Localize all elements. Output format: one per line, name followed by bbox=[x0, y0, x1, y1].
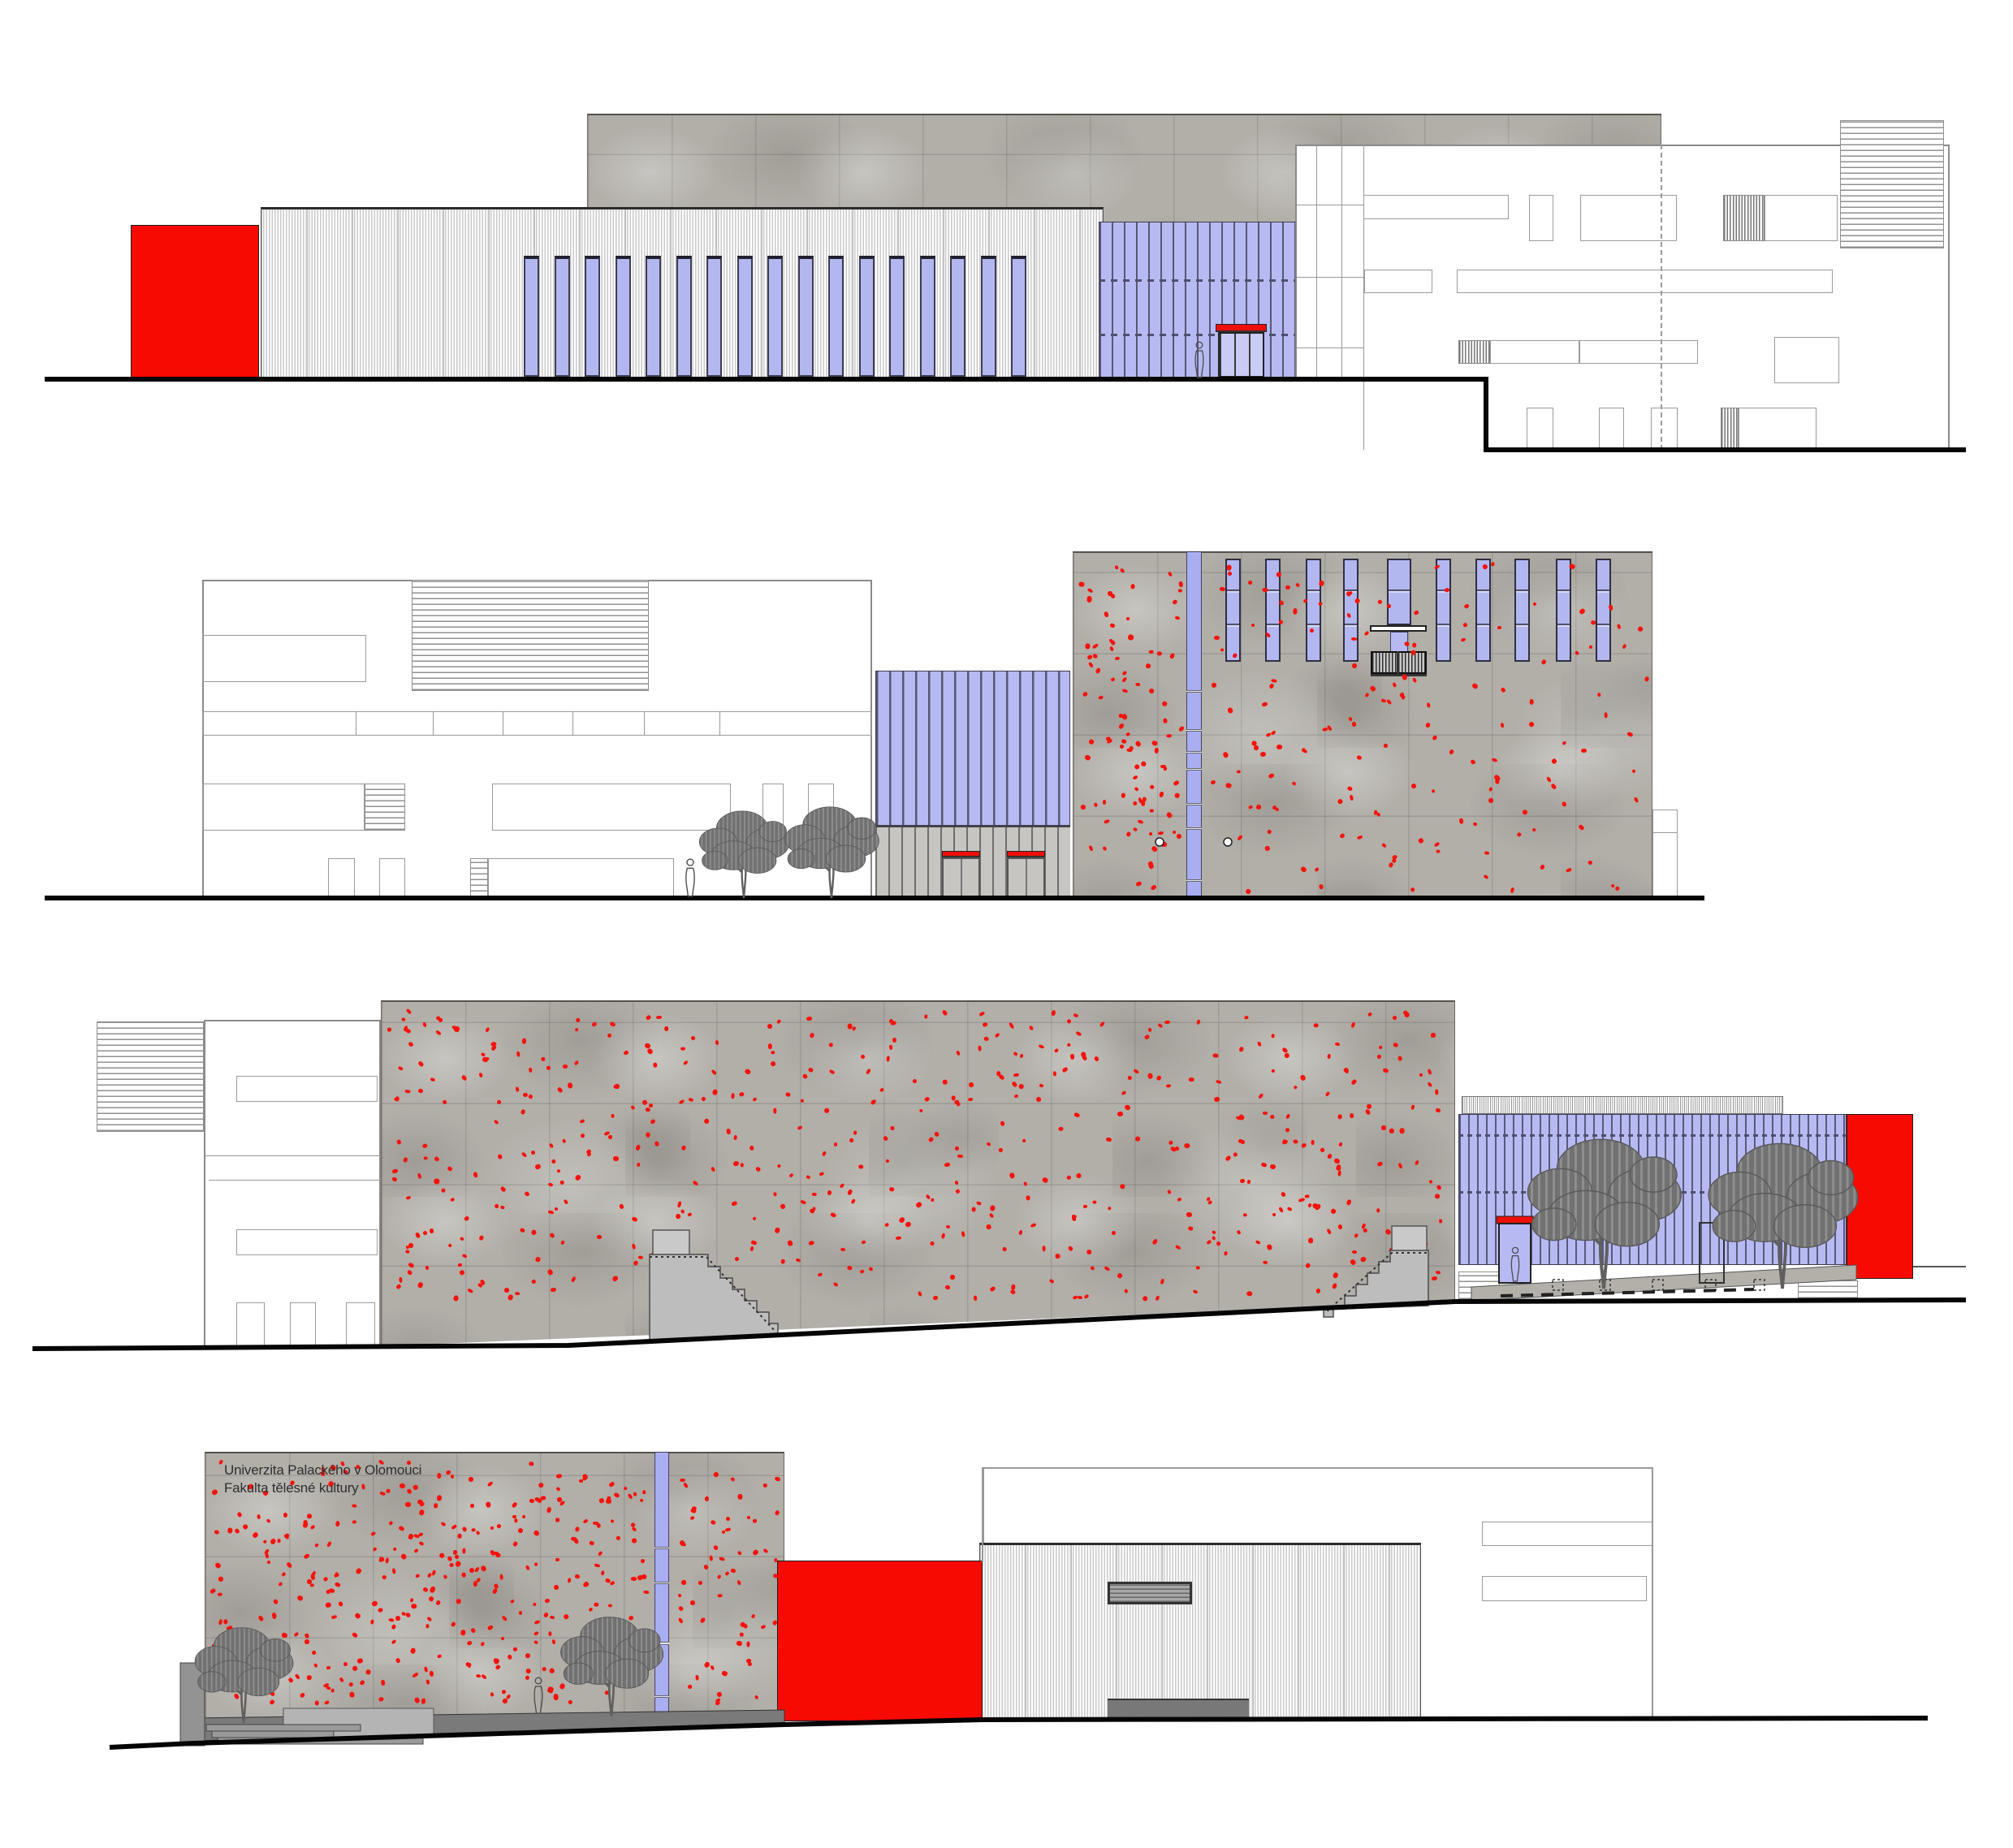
e2-slit-joint bbox=[1186, 690, 1202, 693]
red-dot bbox=[737, 1494, 742, 1500]
e2-mullion bbox=[356, 711, 356, 736]
red-dot bbox=[1156, 651, 1161, 656]
red-dot bbox=[1055, 1253, 1060, 1259]
e1-louver-panel bbox=[1721, 408, 1739, 450]
red-dot bbox=[352, 1520, 356, 1523]
red-dot bbox=[1292, 608, 1297, 615]
e2-door bbox=[379, 858, 405, 898]
red-dot bbox=[525, 1669, 531, 1673]
e4-window-band bbox=[1482, 1522, 1653, 1546]
e1-window bbox=[1490, 340, 1579, 364]
e1-slot-window bbox=[828, 256, 844, 377]
e1-red-block bbox=[131, 225, 259, 379]
red-dot bbox=[1352, 1250, 1357, 1253]
red-dot bbox=[834, 1142, 838, 1146]
red-dot bbox=[1093, 802, 1097, 807]
red-dot bbox=[1087, 596, 1092, 602]
e3-door bbox=[346, 1302, 375, 1346]
red-dot bbox=[405, 1250, 410, 1254]
e2-balcony-column bbox=[1387, 559, 1411, 625]
e2-slit-joint bbox=[1186, 729, 1202, 732]
red-dot bbox=[1178, 581, 1183, 587]
red-dot bbox=[1241, 1140, 1246, 1144]
red-dot bbox=[1195, 1266, 1199, 1269]
e4-slit-joint bbox=[654, 1642, 669, 1645]
red-dot bbox=[1225, 784, 1231, 788]
red-dot bbox=[1435, 1194, 1441, 1198]
red-dot bbox=[886, 1056, 890, 1062]
e2-window bbox=[202, 784, 365, 831]
red-dot bbox=[408, 1243, 413, 1248]
red-dot bbox=[608, 1134, 612, 1138]
e1-window bbox=[1765, 195, 1838, 241]
red-dot bbox=[434, 1503, 438, 1508]
e1-slot-window bbox=[889, 256, 905, 377]
red-dot bbox=[1166, 734, 1172, 738]
e3-window bbox=[236, 1229, 378, 1255]
e2-slot-window bbox=[1514, 559, 1530, 662]
e2-slot-window bbox=[1436, 559, 1451, 662]
red-dot bbox=[623, 1487, 626, 1490]
e1-window bbox=[1364, 270, 1432, 293]
e1-slot-window bbox=[616, 256, 631, 377]
e1-window bbox=[1739, 408, 1816, 450]
e3-floor-line bbox=[209, 1180, 381, 1181]
e1-window-band bbox=[1457, 270, 1833, 293]
e2-clerestory bbox=[202, 711, 872, 736]
e3-red-block bbox=[1847, 1114, 1913, 1279]
red-dot bbox=[1106, 1137, 1112, 1142]
red-dot bbox=[1160, 765, 1166, 768]
e2-window bbox=[492, 784, 731, 831]
e3-base-dashed bbox=[1501, 1289, 1754, 1296]
e3-steps-right bbox=[1798, 1280, 1858, 1299]
red-dot bbox=[631, 1577, 637, 1581]
red-dot bbox=[1219, 586, 1225, 591]
red-dot bbox=[1293, 1139, 1298, 1143]
e2-double-door bbox=[942, 857, 980, 898]
e3-cw-joint-1 bbox=[1458, 1134, 1847, 1137]
e3-window bbox=[236, 1076, 378, 1102]
e3-dotted-wall bbox=[381, 1000, 1455, 1348]
e1-lower-door bbox=[1599, 408, 1624, 450]
e1-slot-window bbox=[798, 256, 814, 377]
e4-slit-joint bbox=[654, 1695, 669, 1698]
e4-window-band bbox=[1482, 1576, 1647, 1601]
red-dot bbox=[472, 1528, 476, 1531]
red-dot bbox=[1400, 1128, 1405, 1133]
red-dot bbox=[1080, 805, 1086, 810]
e2-slit-joint bbox=[1186, 803, 1202, 805]
e1-floor-line bbox=[1296, 205, 1363, 205]
red-dot bbox=[896, 1236, 901, 1240]
e4-dark-plinth bbox=[1108, 1699, 1249, 1719]
e2-mullion bbox=[503, 711, 503, 736]
e1-col-line bbox=[1363, 145, 1364, 450]
e2-slit-joint bbox=[1186, 751, 1202, 753]
e1-window bbox=[1529, 195, 1553, 241]
red-dot bbox=[1309, 628, 1314, 633]
red-dot bbox=[773, 1191, 777, 1196]
red-dot bbox=[653, 1062, 658, 1067]
e2-slit-joint bbox=[1186, 879, 1202, 882]
e2-glass-hall bbox=[875, 671, 1070, 826]
e3-white-building bbox=[204, 1020, 381, 1348]
e1-slot-window bbox=[524, 256, 539, 377]
e1-louver-panel bbox=[1458, 340, 1490, 364]
red-dot bbox=[1308, 1237, 1313, 1243]
red-dot bbox=[421, 1699, 425, 1704]
red-dot bbox=[272, 1662, 277, 1667]
red-dot bbox=[681, 1579, 687, 1585]
e1-slot-window bbox=[950, 256, 965, 377]
red-dot bbox=[525, 1675, 529, 1680]
red-dot bbox=[1532, 828, 1536, 831]
red-dot bbox=[1581, 749, 1587, 753]
e2-slot-window bbox=[1475, 559, 1491, 662]
red-dot bbox=[1042, 1246, 1045, 1252]
red-dot bbox=[529, 1498, 535, 1503]
e1-slot-window bbox=[1011, 256, 1026, 377]
red-dot bbox=[1121, 792, 1125, 797]
e1-slot-window bbox=[859, 256, 875, 377]
e2-slit-joint bbox=[1186, 827, 1202, 830]
red-dot bbox=[553, 1694, 558, 1700]
e1-slot-window bbox=[706, 256, 722, 377]
red-dot bbox=[1141, 761, 1146, 766]
red-dot bbox=[1213, 1054, 1219, 1058]
red-dot bbox=[555, 1518, 559, 1522]
red-dot bbox=[1319, 884, 1323, 890]
red-dot bbox=[773, 1108, 776, 1114]
e2-window bbox=[808, 784, 834, 831]
e2-mullion bbox=[572, 711, 573, 736]
red-dot bbox=[768, 1043, 772, 1049]
e1-window bbox=[1579, 340, 1698, 364]
red-dot bbox=[1351, 637, 1358, 641]
e3-door bbox=[236, 1302, 265, 1346]
e1-louver-panel bbox=[1723, 195, 1765, 241]
red-dot bbox=[1386, 603, 1391, 608]
red-dot bbox=[1163, 719, 1168, 724]
e2-slot-window bbox=[1306, 559, 1321, 662]
e2-annex bbox=[1652, 810, 1678, 898]
e2-door bbox=[328, 858, 355, 898]
e1-slot-window bbox=[737, 256, 753, 377]
e1-slot-window bbox=[767, 256, 783, 377]
e2-grille-sill bbox=[1371, 674, 1427, 676]
red-dot bbox=[889, 1186, 894, 1191]
red-dot bbox=[1026, 1195, 1030, 1200]
red-dot bbox=[1214, 636, 1220, 640]
e1-window bbox=[1774, 337, 1839, 383]
annotation-line-2: Fakulta tělesné kultury bbox=[224, 1479, 421, 1497]
red-dot bbox=[504, 1287, 510, 1292]
red-dot bbox=[740, 1163, 743, 1167]
e2-window bbox=[202, 635, 366, 682]
red-dot bbox=[278, 1539, 281, 1543]
red-dot bbox=[646, 1133, 650, 1138]
e1-slot-window bbox=[585, 256, 600, 377]
red-dot bbox=[1052, 1071, 1056, 1076]
e1-col-line bbox=[1341, 145, 1342, 379]
ground-elevation-4 bbox=[110, 1718, 1928, 1747]
e2-mullion bbox=[719, 711, 720, 736]
e2-grille-post bbox=[1397, 651, 1399, 674]
e1-cw-joint-1 bbox=[1099, 279, 1296, 282]
e2-slit-joint bbox=[1186, 768, 1202, 771]
e1-col-line bbox=[1316, 145, 1317, 379]
red-dot bbox=[405, 1245, 409, 1249]
e3-roof-louver-band bbox=[1462, 1096, 1783, 1114]
e1-slot-window bbox=[646, 256, 661, 377]
e1-axis-line bbox=[1661, 145, 1662, 450]
e1-floor-line bbox=[1296, 348, 1363, 348]
red-dot bbox=[957, 1155, 963, 1158]
red-dot bbox=[476, 1673, 482, 1677]
red-dot bbox=[1244, 1015, 1248, 1019]
red-dot bbox=[1431, 1033, 1436, 1038]
red-dot bbox=[1276, 745, 1281, 749]
red-dot bbox=[493, 1551, 499, 1555]
red-dot bbox=[1313, 1023, 1318, 1027]
red-dot bbox=[453, 1550, 457, 1555]
red-dot bbox=[632, 1539, 637, 1544]
red-dot bbox=[642, 1490, 646, 1494]
e2-slot-window bbox=[1556, 559, 1571, 662]
e4-retaining-post bbox=[180, 1663, 205, 1746]
title-annotation: Univerzita Palackého v Olomouci Fakulta … bbox=[224, 1462, 421, 1497]
red-dot bbox=[1164, 1021, 1170, 1024]
red-dot bbox=[405, 1502, 411, 1507]
red-dot bbox=[1184, 1142, 1190, 1147]
red-dot bbox=[523, 1093, 528, 1098]
red-dot bbox=[1117, 1111, 1123, 1116]
e1-slot-window bbox=[676, 256, 692, 377]
red-dot bbox=[890, 1125, 895, 1130]
red-dot bbox=[1251, 740, 1256, 745]
red-dot bbox=[663, 1026, 668, 1031]
red-dot bbox=[1148, 832, 1152, 836]
red-dot bbox=[1174, 615, 1180, 620]
e2-slot-window bbox=[1596, 559, 1611, 662]
e2-louver-panel bbox=[470, 858, 488, 898]
red-dot bbox=[305, 1639, 309, 1644]
red-dot bbox=[380, 1680, 385, 1686]
e1-slot-window bbox=[981, 256, 996, 377]
e1-entrance-header bbox=[1216, 324, 1267, 332]
red-dot bbox=[1381, 1125, 1386, 1130]
e3-pit bbox=[1754, 1280, 1765, 1290]
annotation-line-1: Univerzita Palackého v Olomouci bbox=[224, 1462, 421, 1479]
red-dot bbox=[737, 1295, 742, 1300]
red-dot bbox=[605, 1617, 609, 1621]
e1-window bbox=[1363, 195, 1509, 219]
e1-slot-window bbox=[920, 256, 935, 377]
red-dot bbox=[430, 1228, 434, 1233]
red-dot bbox=[283, 1512, 287, 1518]
e1-window bbox=[1580, 195, 1677, 241]
red-dot bbox=[853, 1131, 857, 1135]
e1-cw-joint-2 bbox=[1099, 334, 1296, 336]
red-dot bbox=[529, 1462, 533, 1466]
e3-louver-panel bbox=[97, 1021, 204, 1132]
e1-lower-door bbox=[1651, 408, 1678, 450]
red-dot bbox=[458, 1534, 462, 1539]
red-dot bbox=[1155, 748, 1159, 753]
e2-balcony-rail bbox=[1370, 625, 1427, 632]
red-dot bbox=[996, 1071, 1000, 1076]
red-dot bbox=[530, 1150, 535, 1155]
red-dot bbox=[1078, 1295, 1083, 1299]
e3-door bbox=[290, 1302, 316, 1346]
e4-step bbox=[218, 1738, 423, 1744]
red-dot bbox=[462, 1548, 465, 1553]
red-dot bbox=[1591, 620, 1596, 624]
red-dot bbox=[1161, 841, 1167, 846]
red-dot bbox=[433, 1179, 438, 1185]
red-dot bbox=[223, 1620, 227, 1625]
red-dot bbox=[747, 1641, 750, 1647]
red-dot bbox=[1262, 588, 1268, 593]
red-dot bbox=[424, 1156, 428, 1159]
elevation-drawing-canvas: Univerzita Palackého v Olomouci Fakulta … bbox=[0, 0, 2013, 1848]
red-dot bbox=[1148, 650, 1153, 654]
red-dot bbox=[596, 1234, 601, 1238]
e2-slot-window bbox=[1343, 559, 1359, 662]
red-dot bbox=[1246, 1291, 1253, 1297]
e1-slot-window bbox=[555, 256, 570, 377]
e2-glass-slit bbox=[1186, 551, 1202, 898]
e3-pit bbox=[1553, 1280, 1563, 1290]
e1-curtainwall bbox=[1099, 222, 1296, 379]
e2-annex-line bbox=[1652, 832, 1678, 833]
red-dot bbox=[1069, 1053, 1074, 1060]
red-dot bbox=[314, 1700, 319, 1706]
e3-floor-line bbox=[204, 1155, 381, 1156]
red-dot bbox=[311, 1650, 315, 1655]
red-dot bbox=[499, 1574, 503, 1580]
e3-pit bbox=[1600, 1280, 1610, 1290]
red-dot bbox=[1436, 849, 1441, 853]
e2-window bbox=[488, 858, 674, 898]
red-dot bbox=[1189, 1077, 1194, 1082]
e2-louver-panel bbox=[412, 580, 649, 691]
e4-slit-joint bbox=[654, 1547, 669, 1549]
red-dot bbox=[840, 1247, 845, 1251]
e2-window bbox=[762, 784, 784, 831]
red-dot bbox=[606, 1499, 611, 1504]
e4-step bbox=[212, 1731, 334, 1738]
red-dot bbox=[812, 1193, 817, 1197]
red-dot bbox=[1529, 699, 1533, 705]
red-dot bbox=[656, 1016, 662, 1019]
e4-metal-hall bbox=[979, 1543, 1421, 1719]
red-dot bbox=[931, 1198, 934, 1202]
e1-lower-door bbox=[1527, 408, 1553, 450]
e2-door-header bbox=[1007, 851, 1045, 857]
red-dot bbox=[581, 1133, 585, 1138]
e2-mullion bbox=[433, 711, 434, 736]
red-dot bbox=[456, 1599, 461, 1604]
red-dot bbox=[1263, 1112, 1268, 1115]
e3-pit bbox=[1705, 1280, 1716, 1290]
e2-mullion bbox=[644, 711, 645, 736]
e2-door-header bbox=[942, 851, 980, 857]
red-dot bbox=[611, 1113, 614, 1117]
red-dot bbox=[1500, 723, 1504, 728]
red-dot bbox=[395, 1616, 400, 1621]
e3-cw-joint-2 bbox=[1458, 1191, 1847, 1194]
red-dot bbox=[1186, 1211, 1193, 1217]
red-dot bbox=[676, 1214, 681, 1220]
e1-entrance-door bbox=[1218, 332, 1264, 378]
red-dot bbox=[1435, 1089, 1438, 1095]
red-dot bbox=[1018, 1083, 1024, 1089]
red-dot bbox=[950, 1274, 955, 1279]
e3-steps-left bbox=[1458, 1272, 1500, 1300]
red-dot bbox=[555, 1207, 559, 1211]
e2-louver-panel bbox=[365, 784, 405, 831]
red-dot bbox=[847, 1023, 853, 1030]
e2-double-door bbox=[1007, 857, 1045, 898]
e3-pit bbox=[1652, 1280, 1663, 1290]
red-dot bbox=[1311, 1140, 1315, 1145]
red-dot bbox=[522, 1038, 526, 1043]
e1-floor-line bbox=[1296, 277, 1363, 278]
e4-red-block bbox=[777, 1561, 983, 1721]
red-dot bbox=[1338, 1142, 1342, 1146]
red-dot bbox=[501, 1636, 505, 1640]
red-dot bbox=[529, 1068, 532, 1073]
e1-roof-louver bbox=[1840, 120, 1944, 248]
red-dot bbox=[978, 1045, 982, 1051]
red-dot bbox=[1402, 674, 1407, 680]
red-dot bbox=[1436, 1270, 1441, 1274]
e4-slit-joint bbox=[654, 1582, 669, 1584]
red-dot bbox=[727, 1129, 732, 1134]
e4-louver-window bbox=[1108, 1582, 1192, 1604]
e4-step bbox=[206, 1725, 361, 1731]
